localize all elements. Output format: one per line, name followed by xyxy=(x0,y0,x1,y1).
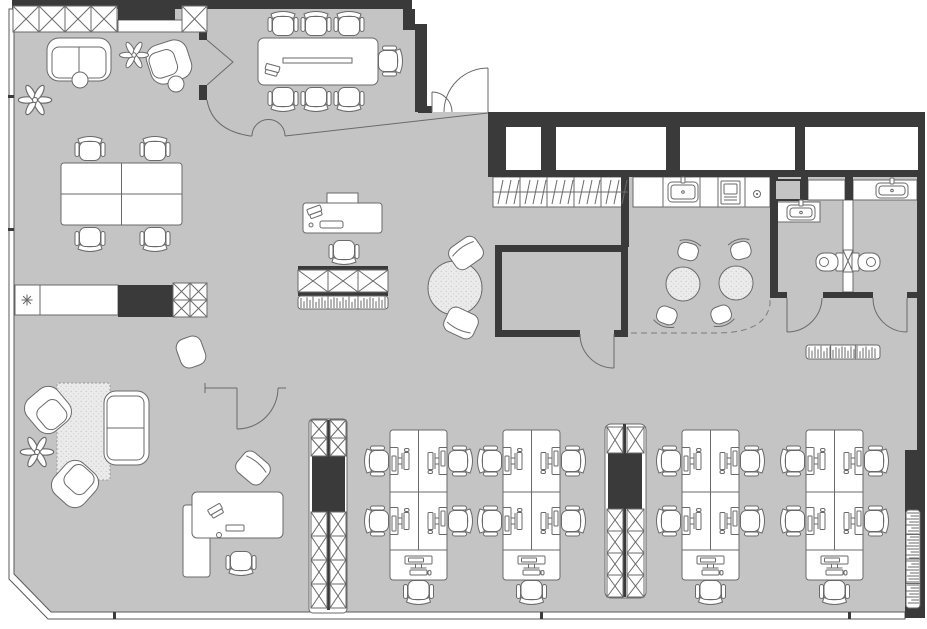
armrest xyxy=(430,585,434,599)
chair-seat xyxy=(865,451,884,472)
office-chair xyxy=(140,228,170,252)
storage-cabinet xyxy=(627,553,644,575)
keyboard xyxy=(844,513,849,530)
armrest xyxy=(869,472,883,476)
office-chair xyxy=(379,46,403,76)
monitor-stand xyxy=(690,518,694,524)
mouse xyxy=(428,471,433,474)
office-chair xyxy=(741,446,765,476)
keyboard xyxy=(696,453,701,470)
office-chair xyxy=(140,137,170,161)
table-groove xyxy=(283,58,352,63)
top-counter xyxy=(118,20,182,32)
chair-seat xyxy=(145,228,166,247)
keyboard xyxy=(820,453,825,470)
office-chair xyxy=(365,506,389,536)
storage-cabinet xyxy=(311,438,327,456)
chair-seat xyxy=(700,581,721,600)
wall-segment xyxy=(907,292,925,298)
armrest xyxy=(226,556,230,570)
monitor-stand xyxy=(511,458,515,464)
monitor-stand xyxy=(435,518,439,524)
mouse xyxy=(720,471,725,474)
armrest xyxy=(371,506,385,510)
monitor-screen xyxy=(857,511,861,526)
armrest xyxy=(517,585,521,599)
armrest xyxy=(166,143,170,157)
armrest xyxy=(722,585,726,599)
monitor-stand xyxy=(529,564,535,568)
office-chair xyxy=(268,12,298,36)
office-chair xyxy=(449,506,473,536)
reception-shelf xyxy=(327,193,358,203)
storage-cabinet xyxy=(65,6,91,32)
office-chair xyxy=(657,506,681,536)
monitor-screen xyxy=(554,511,558,526)
armrest xyxy=(383,72,397,76)
storage-cabinet xyxy=(358,270,388,292)
keyboard xyxy=(720,453,725,470)
wall-segment xyxy=(415,24,427,112)
monitor-stand xyxy=(416,564,422,568)
office-chair xyxy=(301,12,331,36)
armrest xyxy=(663,532,677,536)
chair-seat xyxy=(662,511,681,532)
chair-seat xyxy=(562,451,581,472)
office-chair xyxy=(478,446,502,476)
monitor-stand xyxy=(851,458,855,464)
plant-center xyxy=(32,97,37,102)
bath-cabinet xyxy=(808,180,845,200)
armrest xyxy=(327,92,331,106)
monitor-stand xyxy=(851,518,855,524)
toilet xyxy=(816,253,843,271)
office-chair xyxy=(329,241,359,265)
monitor-screen xyxy=(522,558,537,562)
window xyxy=(680,127,795,170)
armrest xyxy=(360,18,364,32)
monitor-screen xyxy=(441,511,445,526)
bookshelf xyxy=(806,345,880,359)
storage-cabinet xyxy=(627,575,644,597)
office-chair xyxy=(741,506,765,536)
wall-segment xyxy=(298,266,388,270)
keyboard xyxy=(404,513,409,530)
monitor-screen xyxy=(392,516,396,531)
monitor-screen xyxy=(505,456,509,471)
wall-segment xyxy=(8,228,14,231)
chair-seat xyxy=(786,451,805,472)
wall-segment xyxy=(199,85,207,100)
armrest xyxy=(329,245,333,259)
wall-segment xyxy=(298,292,388,296)
chair-seat xyxy=(483,511,502,532)
office-chair xyxy=(781,506,805,536)
keyboard xyxy=(517,513,522,530)
mouse xyxy=(518,449,523,452)
armrest xyxy=(334,18,338,32)
chair-seat xyxy=(741,451,760,472)
office-chair xyxy=(449,446,473,476)
monitor-stand xyxy=(708,564,714,568)
monitor-stand xyxy=(435,458,439,464)
storage-cabinet xyxy=(311,560,327,584)
keyboard xyxy=(541,513,546,530)
wall-segment xyxy=(418,106,432,113)
chair-seat xyxy=(562,511,581,532)
armrest xyxy=(869,506,883,510)
office-chair xyxy=(404,581,434,605)
storage-cabinet xyxy=(330,420,346,438)
storage-cabinet xyxy=(39,6,65,32)
toilet-drain xyxy=(820,258,829,267)
monitor-screen xyxy=(733,451,737,466)
window xyxy=(805,127,918,170)
chair-seat xyxy=(306,88,327,107)
storage-cabinet xyxy=(330,560,346,584)
armrest xyxy=(140,143,144,157)
chair-seat xyxy=(370,511,389,532)
armrest xyxy=(294,92,298,106)
plant-center xyxy=(34,449,39,454)
keyboard xyxy=(428,513,433,530)
burner-dot xyxy=(756,193,758,195)
armrest xyxy=(140,232,144,246)
wall-segment xyxy=(770,292,787,298)
mouse xyxy=(428,531,433,534)
armrest xyxy=(327,18,331,32)
armrest xyxy=(484,472,498,476)
wall-segment xyxy=(8,95,14,98)
armrest xyxy=(453,472,467,476)
monitor-stand xyxy=(727,518,731,524)
armrest xyxy=(484,506,498,510)
faucet xyxy=(681,177,685,183)
armrest xyxy=(75,232,79,246)
armrest xyxy=(355,245,359,259)
wall-segment xyxy=(845,177,853,200)
storage-cabinet xyxy=(330,536,346,560)
wall-segment xyxy=(823,292,873,298)
armrest xyxy=(371,446,385,450)
office-chair xyxy=(226,552,256,576)
armrest xyxy=(371,472,385,476)
monitor-screen xyxy=(684,516,688,531)
armrest xyxy=(268,18,272,32)
armrest xyxy=(360,92,364,106)
mouse xyxy=(697,509,702,512)
cooktop-symbol xyxy=(22,295,33,306)
monitor-stand xyxy=(814,458,818,464)
monitor-screen xyxy=(808,516,812,531)
wall-segment xyxy=(495,330,580,337)
office-chair xyxy=(517,581,547,605)
office-chair xyxy=(865,446,889,476)
monitor-screen xyxy=(857,451,861,466)
chair-seat xyxy=(334,241,355,260)
office-chair xyxy=(365,446,389,476)
storage-cabinet xyxy=(298,270,328,292)
monitor-screen xyxy=(684,456,688,471)
wall-segment xyxy=(403,9,415,30)
mouse xyxy=(821,449,826,452)
keyboard xyxy=(696,513,701,530)
armrest xyxy=(166,232,170,246)
office-chair xyxy=(657,446,681,476)
chair-seat xyxy=(339,17,360,36)
mouse xyxy=(720,531,725,534)
kitchenette-counter xyxy=(40,285,118,315)
monitor-stand xyxy=(548,458,552,464)
wall-segment xyxy=(495,245,628,252)
mouse xyxy=(844,471,849,474)
floor-plan-page xyxy=(0,0,927,629)
armrest xyxy=(301,18,305,32)
wall-segment xyxy=(917,177,925,452)
monitor-screen xyxy=(733,511,737,526)
storage-cabinet xyxy=(13,6,39,32)
armrest xyxy=(383,46,397,50)
sofa xyxy=(104,391,149,465)
armrest xyxy=(453,532,467,536)
plant-center xyxy=(132,53,136,57)
office-chair xyxy=(334,12,364,36)
keyboard xyxy=(702,570,719,575)
armrest xyxy=(101,232,105,246)
toilet xyxy=(852,253,880,271)
wall-segment xyxy=(113,612,116,619)
storage-cabinet xyxy=(627,509,644,531)
monitor-screen xyxy=(701,558,716,562)
armrest xyxy=(663,506,677,510)
office-chair xyxy=(334,88,364,112)
armrest xyxy=(484,532,498,536)
service-shaft xyxy=(775,180,801,200)
bath-divider-wall xyxy=(843,200,853,292)
mouse xyxy=(309,223,313,227)
armrest xyxy=(404,585,408,599)
chair-seat xyxy=(379,51,398,72)
mouse xyxy=(720,571,723,576)
bookshelf xyxy=(906,510,920,608)
storage-cabinet xyxy=(311,512,327,536)
appliance-door xyxy=(724,184,737,194)
toilet-drain xyxy=(867,258,876,267)
storage-cabinet xyxy=(330,584,346,608)
monitor-stand xyxy=(398,518,402,524)
storage-cabinet xyxy=(627,531,644,553)
storage-cabinet xyxy=(330,438,346,456)
keyboard xyxy=(523,570,540,575)
monitor-stand xyxy=(690,458,694,464)
monitor-screen xyxy=(409,558,424,562)
mouse xyxy=(405,449,410,452)
mouse xyxy=(541,471,546,474)
armrest xyxy=(371,532,385,536)
chair-seat xyxy=(449,511,468,532)
office-chair xyxy=(696,581,726,605)
monitor-screen xyxy=(392,456,396,471)
office-chair xyxy=(75,228,105,252)
keyboard xyxy=(541,453,546,470)
chair-seat xyxy=(231,552,252,571)
armrest xyxy=(745,532,759,536)
wall-segment xyxy=(118,8,175,20)
storage-cabinet xyxy=(311,584,327,608)
armrest xyxy=(252,556,256,570)
monitor-screen xyxy=(441,451,445,466)
armrest xyxy=(566,532,580,536)
chair-seat xyxy=(483,451,502,472)
armrest xyxy=(453,506,467,510)
storage-cabinet xyxy=(311,420,327,438)
office-chair xyxy=(781,446,805,476)
wall-segment xyxy=(118,285,173,317)
chair-seat xyxy=(145,142,166,161)
chair-seat xyxy=(273,88,294,107)
faucet xyxy=(890,178,894,184)
armrest xyxy=(787,446,801,450)
office-chair xyxy=(865,506,889,536)
drain xyxy=(800,211,803,214)
storage-cabinet xyxy=(607,553,623,575)
armrest xyxy=(846,585,850,599)
cafe-table xyxy=(719,266,753,300)
armrest xyxy=(268,92,272,106)
mouse xyxy=(697,449,702,452)
chair-seat xyxy=(370,451,389,472)
storage-cabinet xyxy=(91,6,117,32)
monitor-stand xyxy=(814,518,818,524)
storage-cabinet xyxy=(607,427,623,453)
armrest xyxy=(566,446,580,450)
office-chair xyxy=(75,137,105,161)
chair-seat xyxy=(449,451,468,472)
drain xyxy=(891,189,894,192)
storage-cabinet xyxy=(627,427,644,453)
mouse xyxy=(518,509,523,512)
desk-cluster xyxy=(61,163,182,225)
mouse xyxy=(844,531,849,534)
armrest xyxy=(745,506,759,510)
armrest xyxy=(869,532,883,536)
monitor-screen xyxy=(554,451,558,466)
armrest xyxy=(566,472,580,476)
chair-seat xyxy=(865,511,884,532)
chair-seat xyxy=(741,511,760,532)
side-table xyxy=(72,72,88,88)
storage-cabinet xyxy=(311,536,327,560)
office-chair xyxy=(301,88,331,112)
storage-cabinet xyxy=(607,575,623,597)
keyboard xyxy=(410,570,427,575)
storage-cabinet xyxy=(607,531,623,553)
armrest xyxy=(663,446,677,450)
armrest xyxy=(101,143,105,157)
keyboard xyxy=(820,513,825,530)
monitor-stand xyxy=(548,518,552,524)
mouse xyxy=(217,533,222,538)
mouse xyxy=(821,509,826,512)
floor-plan-drawing xyxy=(0,0,927,629)
storage-cabinet xyxy=(607,509,623,531)
chair-seat xyxy=(786,511,805,532)
armrest xyxy=(543,585,547,599)
chair-seat xyxy=(80,142,101,161)
office-chair xyxy=(820,581,850,605)
mouse xyxy=(428,571,431,576)
side-table xyxy=(168,76,184,92)
storage-cabinet xyxy=(173,300,190,317)
chair-seat xyxy=(662,451,681,472)
monitor-screen xyxy=(808,456,812,471)
armrest xyxy=(663,472,677,476)
mouse xyxy=(844,571,847,576)
window xyxy=(556,127,666,170)
armrest xyxy=(566,506,580,510)
wall-segment xyxy=(801,177,808,200)
keyboard xyxy=(826,570,843,575)
chair-seat xyxy=(80,228,101,247)
armrest xyxy=(301,92,305,106)
armrest xyxy=(787,506,801,510)
keyboard xyxy=(844,453,849,470)
chair-seat xyxy=(273,17,294,36)
mouse xyxy=(541,531,546,534)
keyboard xyxy=(517,453,522,470)
office-chair xyxy=(562,506,586,536)
faucet xyxy=(799,200,803,206)
window xyxy=(506,127,541,170)
wall-segment xyxy=(540,612,543,619)
office-chair xyxy=(478,506,502,536)
keyboard xyxy=(404,453,409,470)
office-chair xyxy=(562,446,586,476)
armrest xyxy=(696,585,700,599)
chair-seat xyxy=(521,581,542,600)
armrest xyxy=(484,446,498,450)
wall-segment xyxy=(848,612,851,619)
storage-cabinet xyxy=(190,283,207,300)
monitor-stand xyxy=(832,564,838,568)
drain xyxy=(682,191,685,194)
monitor-stand xyxy=(398,458,402,464)
entry-door-swing xyxy=(432,92,452,112)
office-chair xyxy=(268,88,298,112)
kitchen-appliance xyxy=(721,181,740,204)
chair-seat xyxy=(339,88,360,107)
armrest xyxy=(745,472,759,476)
mouse xyxy=(405,509,410,512)
keyboard xyxy=(428,453,433,470)
storage-cabinet xyxy=(190,300,207,317)
cafe-table xyxy=(666,267,700,301)
monitor-screen xyxy=(825,558,840,562)
armrest xyxy=(75,143,79,157)
wall-segment xyxy=(495,245,502,337)
desk-phone xyxy=(320,221,343,228)
storage-cabinet xyxy=(173,283,190,300)
armrest xyxy=(745,446,759,450)
pen-tray xyxy=(226,525,244,531)
bookshelf xyxy=(298,296,388,309)
armrest xyxy=(869,446,883,450)
chair-seat xyxy=(306,17,327,36)
armrest xyxy=(294,18,298,32)
mouse xyxy=(541,571,544,576)
monitor-stand xyxy=(511,518,515,524)
wall-segment xyxy=(614,330,628,337)
